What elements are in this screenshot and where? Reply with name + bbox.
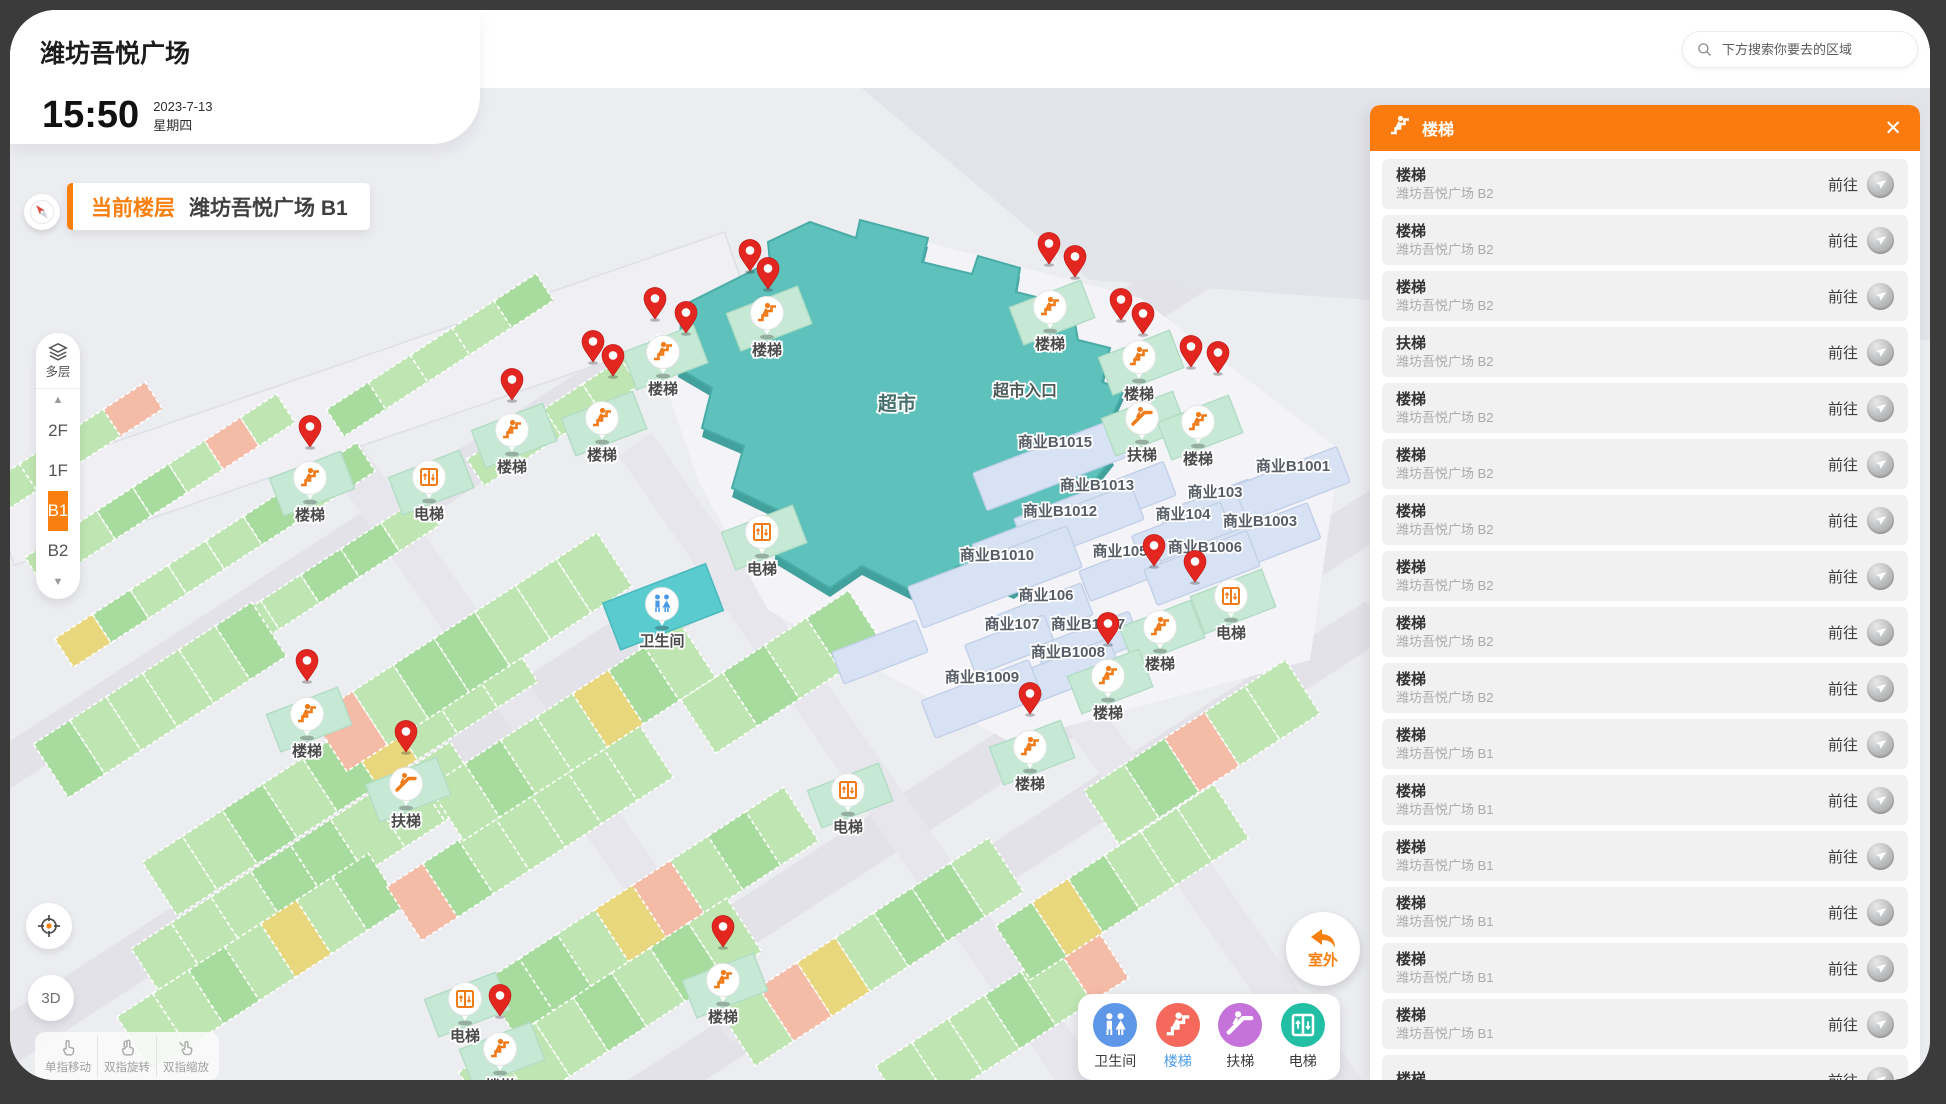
map-area-label: 商业105 (1092, 542, 1147, 560)
poi-item-title: 楼梯 (1396, 390, 1828, 410)
navigation-arrow-icon (1874, 849, 1888, 863)
go-to-label: 前往 (1828, 398, 1858, 419)
go-to-label: 前往 (1828, 286, 1858, 307)
go-to-label: 前往 (1828, 790, 1858, 811)
poi-item-location: 潍坊吾悦广场 B2 (1396, 690, 1828, 706)
clock-weekday: 星期四 (153, 117, 212, 136)
two-finger-rotate-icon (117, 1038, 137, 1058)
clock-time: 15:50 (42, 96, 139, 134)
multi-floor-label: 多层 (45, 361, 70, 380)
poi-label: 楼梯 (752, 341, 782, 359)
poi-label: 楼梯 (1145, 655, 1175, 673)
navigation-arrow-icon (1874, 1017, 1888, 1031)
escalator-icon (1218, 1003, 1262, 1047)
floor-option-b2[interactable]: B2 (48, 531, 69, 571)
gesture-hint-bar: 单指移动 双指旋转 双指缩放 (35, 1032, 219, 1080)
poi-item-title: 楼梯 (1396, 614, 1828, 634)
navigate-button[interactable] (1867, 227, 1894, 254)
poi-item-location: 潍坊吾悦广场 B2 (1396, 186, 1828, 202)
poi-item-title: 楼梯 (1396, 782, 1828, 802)
map-area-label: 商业B1009 (945, 668, 1019, 686)
go-to-label: 前往 (1828, 734, 1858, 755)
map-area-label: 商业104 (1155, 505, 1211, 523)
search-input[interactable] (1720, 41, 1903, 58)
floor-scroll-down-icon[interactable]: ▼ (53, 571, 64, 593)
navigation-arrow-icon (1874, 345, 1888, 359)
poi-label: 楼梯 (708, 1008, 738, 1026)
go-to-label: 前往 (1828, 622, 1858, 643)
poi-label: 楼梯 (587, 446, 617, 464)
toolbar-label: 楼梯 (1164, 1051, 1192, 1071)
map-area-label: 商业103 (1187, 483, 1242, 501)
go-to-label: 前往 (1828, 1070, 1858, 1081)
navigate-button[interactable] (1867, 731, 1894, 758)
poi-list-item[interactable]: 楼梯 潍坊吾悦广场 B1 前往 (1382, 719, 1908, 769)
map-area-label: 商业107 (984, 615, 1039, 633)
go-to-label: 前往 (1828, 1014, 1858, 1035)
restroom-icon (1093, 1003, 1137, 1047)
panel-list[interactable]: 楼梯 潍坊吾悦广场 B2 前往 楼梯 潍坊吾悦广场 B2 前往 楼梯 潍坊吾悦广… (1370, 151, 1920, 1080)
go-to-label: 前往 (1828, 174, 1858, 195)
clock-date: 2023-7-13 星期四 (153, 96, 212, 136)
poi-item-location: 潍坊吾悦广场 B1 (1396, 746, 1828, 762)
poi-list-item[interactable]: 楼梯 潍坊吾悦广场 B1 前往 (1382, 943, 1908, 993)
poi-item-location: 潍坊吾悦广场 B1 (1396, 1026, 1828, 1042)
navigate-button[interactable] (1867, 507, 1894, 534)
locate-button[interactable] (26, 903, 72, 949)
poi-item-location: 潍坊吾悦广场 B2 (1396, 466, 1828, 482)
poi-list-item[interactable]: 楼梯 潍坊吾悦广场 B1 前往 (1382, 831, 1908, 881)
one-finger-move-icon (58, 1038, 78, 1058)
navigate-button[interactable] (1867, 171, 1894, 198)
poi-label: 楼梯 (295, 506, 325, 524)
map-area-label: 商业B1003 (1223, 512, 1297, 530)
navigation-arrow-icon (1874, 513, 1888, 527)
map-area-label: 商业106 (1018, 586, 1073, 604)
navigate-button[interactable] (1867, 395, 1894, 422)
toolbar-restroom-button[interactable]: 卫生间 (1093, 1003, 1137, 1071)
gesture-hint-label: 双指缩放 (163, 1059, 209, 1075)
poi-item-title: 楼梯 (1396, 166, 1828, 186)
navigate-button[interactable] (1867, 283, 1894, 310)
navigation-arrow-icon (1874, 737, 1888, 751)
poi-item-title: 楼梯 (1396, 894, 1828, 914)
poi-label: 楼梯 (292, 742, 322, 760)
poi-item-location: 潍坊吾悦广场 B1 (1396, 858, 1828, 874)
search-box[interactable] (1682, 31, 1918, 68)
poi-label: 楼梯 (1183, 450, 1213, 468)
map-area-label: 超市入口 (992, 381, 1057, 400)
poi-list-item[interactable]: 楼梯 潍坊吾悦广场 B1 前往 (1382, 775, 1908, 825)
floor-option-1f[interactable]: 1F (48, 451, 69, 491)
navigation-arrow-icon (1874, 625, 1888, 639)
poi-label: 楼梯 (1093, 704, 1123, 722)
app-window: 楼梯 电梯 楼梯 楼梯 楼梯 楼梯 楼梯 楼梯 扶梯 楼梯 电梯 卫生间 楼梯 … (10, 10, 1930, 1080)
poi-list-item[interactable]: 楼梯 潍坊吾悦广场 B2 前往 (1382, 159, 1908, 209)
poi-list-item[interactable]: 楼梯 潍坊吾悦广场 B1 前往 (1382, 999, 1908, 1049)
gesture-hint-label: 双指旋转 (104, 1059, 150, 1075)
poi-item-title: 楼梯 (1396, 950, 1828, 970)
go-to-label: 前往 (1828, 846, 1858, 867)
poi-item-title: 楼梯 (1396, 670, 1828, 690)
navigate-button[interactable] (1867, 451, 1894, 478)
go-to-label: 前往 (1828, 678, 1858, 699)
navigate-button[interactable] (1867, 675, 1894, 702)
poi-item-title: 楼梯 (1396, 1006, 1828, 1026)
navigate-button[interactable] (1867, 1011, 1894, 1038)
poi-label: 电梯 (450, 1027, 480, 1045)
poi-item-title: 楼梯 (1396, 838, 1828, 858)
poi-list-item[interactable]: 楼梯 潍坊吾悦广场 B2 前往 (1382, 607, 1908, 657)
poi-item-title: 楼梯 (1396, 278, 1828, 298)
poi-label: 扶梯 (391, 812, 421, 830)
poi-list-item[interactable]: 楼梯 前往 (1382, 1055, 1908, 1080)
compass-needle-icon (29, 199, 55, 225)
map-area-label: 商业B1012 (1023, 502, 1097, 520)
panel-title: 楼梯 (1422, 116, 1884, 140)
panel-header: 楼梯 ✕ (1370, 105, 1920, 151)
go-to-label: 前往 (1828, 902, 1858, 923)
navigation-arrow-icon (1874, 1073, 1888, 1080)
go-to-label: 前往 (1828, 342, 1858, 363)
search-icon (1697, 42, 1712, 57)
navigation-arrow-icon (1874, 177, 1888, 191)
map-area-label: 商业B1013 (1060, 476, 1134, 494)
poi-list-item[interactable]: 楼梯 潍坊吾悦广场 B2 前往 (1382, 383, 1908, 433)
poi-item-location: 潍坊吾悦广场 B2 (1396, 578, 1828, 594)
toolbar-label: 电梯 (1289, 1051, 1317, 1071)
navigate-button[interactable] (1867, 899, 1894, 926)
poi-item-title: 楼梯 (1396, 222, 1828, 242)
current-floor-card: 当前楼层 潍坊吾悦广场 B1 (67, 183, 370, 230)
back-arrow-icon (1308, 928, 1338, 950)
clock: 15:50 2023-7-13 星期四 (42, 96, 212, 136)
poi-list-item[interactable]: 楼梯 潍坊吾悦广场 B2 前往 (1382, 439, 1908, 489)
navigate-button[interactable] (1867, 339, 1894, 366)
navigate-button[interactable] (1867, 843, 1894, 870)
navigation-arrow-icon (1874, 289, 1888, 303)
poi-label: 楼梯 (497, 458, 527, 476)
gesture-hint: 双指旋转 (97, 1036, 156, 1077)
navigation-arrow-icon (1874, 793, 1888, 807)
poi-item-location: 潍坊吾悦广场 B2 (1396, 242, 1828, 258)
navigate-button[interactable] (1867, 563, 1894, 590)
current-floor-value: 潍坊吾悦广场 B1 (189, 192, 348, 222)
toolbar-label: 扶梯 (1226, 1051, 1254, 1071)
poi-list-item[interactable]: 楼梯 潍坊吾悦广场 B2 前往 (1382, 271, 1908, 321)
current-floor-label: 当前楼层 (91, 192, 175, 222)
clock-date-value: 2023-7-13 (153, 98, 212, 117)
poi-label: 楼梯 (1124, 385, 1154, 403)
navigation-arrow-icon (1874, 233, 1888, 247)
navigation-arrow-icon (1874, 401, 1888, 415)
poi-list-item[interactable]: 楼梯 潍坊吾悦广场 B2 前往 (1382, 495, 1908, 545)
toolbar-escalator-button[interactable]: 扶梯 (1218, 1003, 1262, 1071)
close-icon[interactable]: ✕ (1884, 118, 1902, 139)
navigate-button[interactable] (1867, 1067, 1894, 1081)
poi-label: 楼梯 (1015, 775, 1045, 793)
go-to-label: 前往 (1828, 566, 1858, 587)
poi-label: 电梯 (1216, 624, 1246, 642)
poi-label: 楼梯 (1035, 335, 1065, 353)
go-to-label: 前往 (1828, 454, 1858, 475)
results-panel: 楼梯 ✕ 楼梯 潍坊吾悦广场 B2 前往 楼梯 潍坊吾悦广场 B2 前往 (1370, 105, 1920, 1080)
navigate-button[interactable] (1867, 619, 1894, 646)
navigation-arrow-icon (1874, 681, 1888, 695)
layers-icon (48, 343, 68, 361)
poi-list-item[interactable]: 楼梯 潍坊吾悦广场 B1 前往 (1382, 887, 1908, 937)
poi-item-location: 潍坊吾悦广场 B1 (1396, 970, 1828, 986)
poi-label: 扶梯 (1127, 446, 1157, 464)
poi-item-title: 楼梯 (1396, 1070, 1828, 1080)
poi-label: 楼梯 (648, 380, 678, 398)
gesture-hint-label: 单指移动 (45, 1059, 91, 1075)
go-to-label: 前往 (1828, 510, 1858, 531)
go-to-label: 前往 (1828, 958, 1858, 979)
poi-label: 电梯 (747, 560, 777, 578)
stairs-icon (1388, 114, 1412, 143)
map-area-label: 商业B1001 (1256, 457, 1330, 475)
map-area-label: 商业B1006 (1168, 538, 1242, 556)
3d-mode-button[interactable]: 3D (28, 975, 74, 1021)
floor-option-b1[interactable]: B1 (48, 491, 69, 531)
poi-item-title: 楼梯 (1396, 558, 1828, 578)
poi-item-location: 潍坊吾悦广场 B2 (1396, 522, 1828, 538)
poi-item-title: 楼梯 (1396, 502, 1828, 522)
floor-selector: 多层 ▲ 2F1FB1B2 ▼ (36, 333, 80, 599)
poi-list-item[interactable]: 楼梯 潍坊吾悦广场 B2 前往 (1382, 663, 1908, 713)
gesture-hint: 单指移动 (39, 1036, 97, 1077)
poi-item-title: 楼梯 (1396, 726, 1828, 746)
toolbar-stairs-button[interactable]: 楼梯 (1156, 1003, 1200, 1071)
map-area-label: 商业B1015 (1018, 433, 1092, 451)
go-to-label: 前往 (1828, 230, 1858, 251)
poi-item-location: 潍坊吾悦广场 B2 (1396, 410, 1828, 426)
compass-icon[interactable] (24, 194, 60, 230)
poi-label: 楼梯 (485, 1077, 515, 1080)
navigation-arrow-icon (1874, 905, 1888, 919)
poi-item-location: 潍坊吾悦广场 B1 (1396, 802, 1828, 818)
navigate-button[interactable] (1867, 955, 1894, 982)
two-finger-zoom-icon (176, 1038, 196, 1058)
navigation-arrow-icon (1874, 569, 1888, 583)
outdoor-label: 室外 (1308, 949, 1338, 970)
poi-label: 电梯 (414, 505, 444, 523)
gesture-hint: 双指缩放 (156, 1036, 215, 1077)
floor-scroll-up-icon[interactable]: ▲ (53, 389, 64, 411)
page-title: 潍坊吾悦广场 (40, 34, 190, 70)
navigation-arrow-icon (1874, 961, 1888, 975)
multi-floor-button[interactable]: 多层 (36, 343, 80, 389)
poi-label: 卫生间 (639, 632, 684, 650)
poi-list-item[interactable]: 扶梯 潍坊吾悦广场 B2 前往 (1382, 327, 1908, 377)
poi-category-toolbar: 卫生间 楼梯 扶梯 电梯 (1078, 994, 1340, 1080)
navigation-arrow-icon (1874, 457, 1888, 471)
poi-label: 电梯 (833, 818, 863, 836)
poi-item-location: 潍坊吾悦广场 B1 (1396, 914, 1828, 930)
time-card: 潍坊吾悦广场 15:50 2023-7-13 星期四 (10, 10, 480, 144)
crosshair-icon (36, 913, 62, 939)
map-area-label: 商业B1008 (1031, 643, 1105, 661)
poi-item-location: 潍坊吾悦广场 B2 (1396, 634, 1828, 650)
stairs-icon (1156, 1003, 1200, 1047)
poi-item-title: 扶梯 (1396, 334, 1828, 354)
toolbar-label: 卫生间 (1094, 1051, 1136, 1071)
accent-bar (67, 183, 73, 230)
floor-option-2f[interactable]: 2F (48, 411, 69, 451)
poi-list-item[interactable]: 楼梯 潍坊吾悦广场 B2 前往 (1382, 215, 1908, 265)
navigate-button[interactable] (1867, 787, 1894, 814)
3d-mode-label: 3D (41, 990, 60, 1007)
map-area-label: 超市 (877, 392, 916, 415)
poi-item-location: 潍坊吾悦广场 B2 (1396, 354, 1828, 370)
elevator-icon (1281, 1003, 1325, 1047)
toolbar-elevator-button[interactable]: 电梯 (1281, 1003, 1325, 1071)
map-area-label: 商业B1010 (960, 546, 1034, 564)
poi-item-location: 潍坊吾悦广场 B2 (1396, 298, 1828, 314)
outdoor-button[interactable]: 室外 (1286, 912, 1360, 986)
poi-item-title: 楼梯 (1396, 446, 1828, 466)
poi-list-item[interactable]: 楼梯 潍坊吾悦广场 B2 前往 (1382, 551, 1908, 601)
